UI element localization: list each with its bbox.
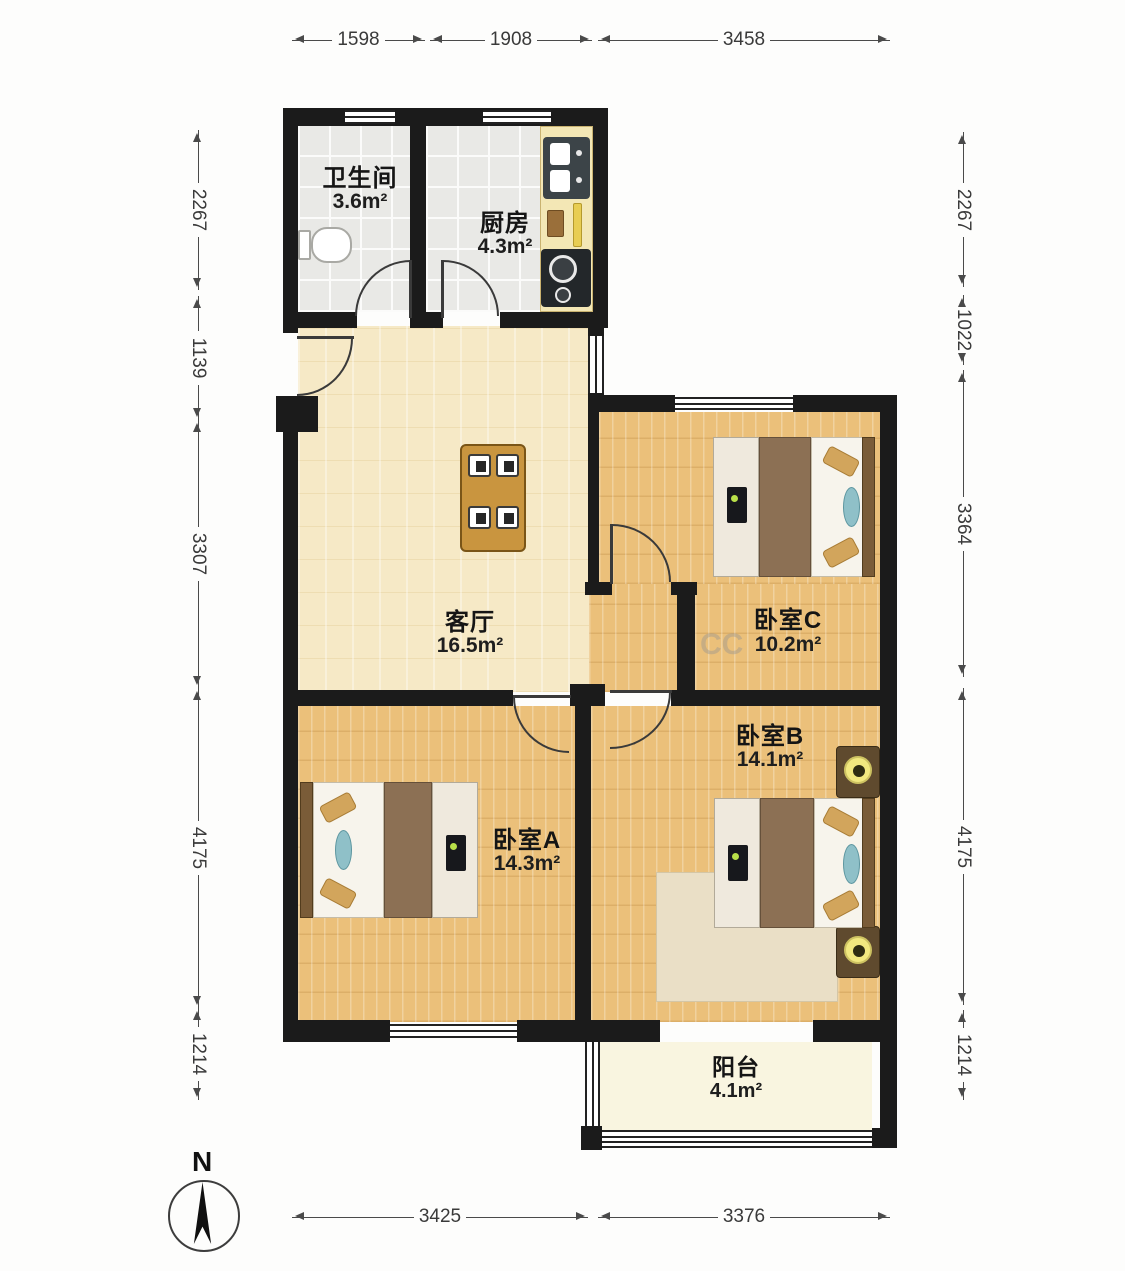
dim-value: 3425 (414, 1206, 466, 1228)
wall (410, 312, 443, 328)
compass-north-label: N (192, 1146, 212, 1178)
bathroom-door-leaf (409, 260, 412, 318)
wall (283, 430, 298, 1042)
wall (581, 1126, 602, 1150)
dim-value: 2267 (954, 183, 972, 237)
wall (880, 395, 897, 1148)
dim-line (963, 370, 964, 497)
bedroom-c-wardrobe (713, 437, 759, 577)
dim-left-2: 1139 (189, 296, 207, 420)
dim-line (598, 1217, 718, 1218)
toilet (298, 230, 311, 260)
dim-text: 1139 (187, 338, 209, 379)
dining-table (460, 444, 526, 552)
hallway-floor (589, 584, 677, 692)
dim-value: 1598 (332, 29, 384, 51)
sink-basin-bottom (550, 170, 570, 192)
dim-value: 3376 (718, 1206, 770, 1228)
dim-value: 1908 (485, 29, 537, 51)
dim-line (198, 688, 199, 821)
balcony-area: 4.1m² (661, 1080, 811, 1103)
wall (283, 312, 357, 328)
dim-top-2: 1908 (430, 31, 592, 49)
dim-line (198, 385, 199, 420)
dim-line (963, 1010, 964, 1028)
sink-tap-dot2 (576, 177, 582, 183)
sink-tap-dot (576, 150, 582, 156)
dim-value: 4175 (954, 820, 972, 874)
dim-top-3: 3458 (598, 31, 890, 49)
dim-text: 4175 (952, 825, 974, 867)
wall (500, 312, 608, 328)
bedroom-c-door-leaf (610, 524, 613, 584)
dim-text: 1214 (187, 1033, 209, 1075)
dim-line (598, 40, 718, 41)
wall (588, 395, 675, 412)
plate (468, 454, 491, 477)
dim-right-3: 3364 (954, 370, 972, 677)
dim-right-5: 1214 (954, 1010, 972, 1100)
plate (496, 506, 519, 529)
wall (410, 126, 426, 318)
wall (570, 684, 605, 706)
pillow-blue (843, 487, 860, 527)
dim-line (537, 40, 592, 41)
plate (496, 454, 519, 477)
dim-line (963, 688, 964, 820)
lamp-center (853, 945, 865, 957)
dim-line (770, 1217, 890, 1218)
dim-line (963, 237, 964, 288)
dim-line (198, 875, 199, 1008)
bedroom-a-bed-blanket (384, 782, 432, 918)
dim-text: 1214 (952, 1034, 974, 1076)
dim-value: 3307 (189, 527, 207, 581)
living-room-area: 16.5m² (395, 634, 545, 658)
kitchen-door-leaf (441, 260, 444, 318)
bedroom-b-area: 14.1m² (695, 748, 845, 772)
living-room-label: 客厅 (395, 602, 545, 637)
floorplan-canvas: 卫生间 3.6m² 厨房 4.3m² 客厅 16.5m² CC 卧室C 10.2… (0, 0, 1125, 1271)
dim-line (963, 551, 964, 678)
dim-left-5: 1214 (189, 1008, 207, 1100)
bedroom-b-door-leaf (610, 690, 672, 693)
kitchen-window (483, 110, 551, 124)
bedroom-c-window (675, 397, 793, 410)
plate (468, 506, 491, 529)
balcony-window (602, 1130, 872, 1148)
dim-value: 1214 (954, 1028, 972, 1082)
pillow-blue (843, 844, 860, 884)
dim-value: 1214 (189, 1027, 207, 1081)
dim-line (198, 581, 199, 688)
balcony-label: 阳台 (661, 1048, 811, 1082)
wall (588, 328, 604, 336)
dim-right-4: 4175 (954, 688, 972, 1005)
wall (283, 690, 513, 706)
dim-line (963, 357, 964, 365)
dim-text: 1022 (952, 309, 974, 351)
living-room-side-window (588, 336, 604, 393)
dim-line (770, 40, 890, 41)
dim-value: 3458 (718, 29, 770, 51)
stove-burner-large (549, 255, 577, 283)
bedroom-c-label: 卧室C (713, 600, 863, 635)
wall (671, 690, 897, 706)
dim-text: 4175 (187, 827, 209, 869)
dim-line (198, 420, 199, 527)
wall (283, 1020, 390, 1042)
dim-text: 2267 (187, 189, 209, 231)
wall (813, 1020, 880, 1042)
bathroom-window (345, 110, 395, 124)
dim-bottom-2: 3376 (598, 1208, 890, 1226)
bedroom-b-bed-headboard (862, 798, 875, 928)
sink-basin-top (550, 143, 570, 165)
stove-burner-small (555, 287, 571, 303)
lamp-center (853, 765, 865, 777)
dim-line (385, 40, 425, 41)
dim-left-3: 3307 (189, 420, 207, 688)
wall (593, 108, 608, 328)
bedroom-a-window (390, 1024, 517, 1038)
dim-line (466, 1217, 588, 1218)
dim-line (430, 40, 485, 41)
wall (872, 1128, 897, 1148)
pillow-blue (335, 830, 352, 870)
entry-door-leaf (297, 336, 354, 339)
dim-bottom-1: 3425 (292, 1208, 588, 1226)
bedroom-b-wardrobe (714, 798, 760, 928)
dim-line (963, 1082, 964, 1100)
dim-value: 4175 (189, 821, 207, 875)
dim-line (198, 296, 199, 331)
wall (585, 582, 612, 595)
bathroom-label: 卫生间 (285, 158, 435, 193)
wall (517, 1020, 660, 1042)
bedroom-c-bed-blanket (759, 437, 811, 577)
bathroom-area: 3.6m² (285, 190, 435, 214)
bedroom-b-bed-blanket (760, 798, 814, 928)
dim-left-1: 2267 (189, 130, 207, 290)
dim-text: 3364 (952, 502, 974, 544)
wall-entry-step (276, 396, 318, 432)
dim-left-4: 4175 (189, 688, 207, 1008)
dim-line (963, 874, 964, 1006)
bedroom-a-bed-headboard (300, 782, 313, 918)
dim-right-1: 2267 (954, 132, 972, 287)
dim-line (292, 1217, 414, 1218)
bedroom-a-label: 卧室A (452, 820, 602, 855)
dim-line (963, 132, 964, 183)
dim-line (198, 1008, 199, 1027)
dim-text: 3307 (187, 533, 209, 575)
dim-top-1: 1598 (292, 31, 425, 49)
dim-text: 2267 (952, 188, 974, 230)
toilet-bowl (311, 227, 352, 263)
dim-value: 2267 (189, 183, 207, 237)
bedroom-c-bed-headboard (862, 437, 875, 577)
nightstand (836, 926, 880, 978)
wall (283, 108, 608, 126)
bedroom-a-door-leaf (513, 695, 571, 698)
kitchen-label: 厨房 (430, 203, 580, 238)
dim-line (198, 1081, 199, 1100)
kitchen-area: 4.3m² (430, 235, 580, 259)
dim-value: 1022 (954, 303, 972, 357)
kitchen-sink (543, 137, 590, 199)
bedroom-c-area: 10.2m² (713, 633, 863, 657)
tv-icon (728, 845, 748, 881)
dim-right-2: 1022 (954, 295, 972, 365)
dim-line (198, 237, 199, 290)
dim-line (292, 40, 332, 41)
bedroom-a-area: 14.3m² (452, 852, 602, 876)
wall (588, 412, 599, 584)
dim-value: 1139 (189, 331, 207, 385)
balcony-side-window (585, 1042, 600, 1126)
dim-line (198, 130, 199, 183)
bedroom-b-label: 卧室B (695, 716, 845, 751)
dim-value: 3364 (954, 497, 972, 551)
tv-icon (727, 487, 747, 523)
dim-line (963, 295, 964, 303)
